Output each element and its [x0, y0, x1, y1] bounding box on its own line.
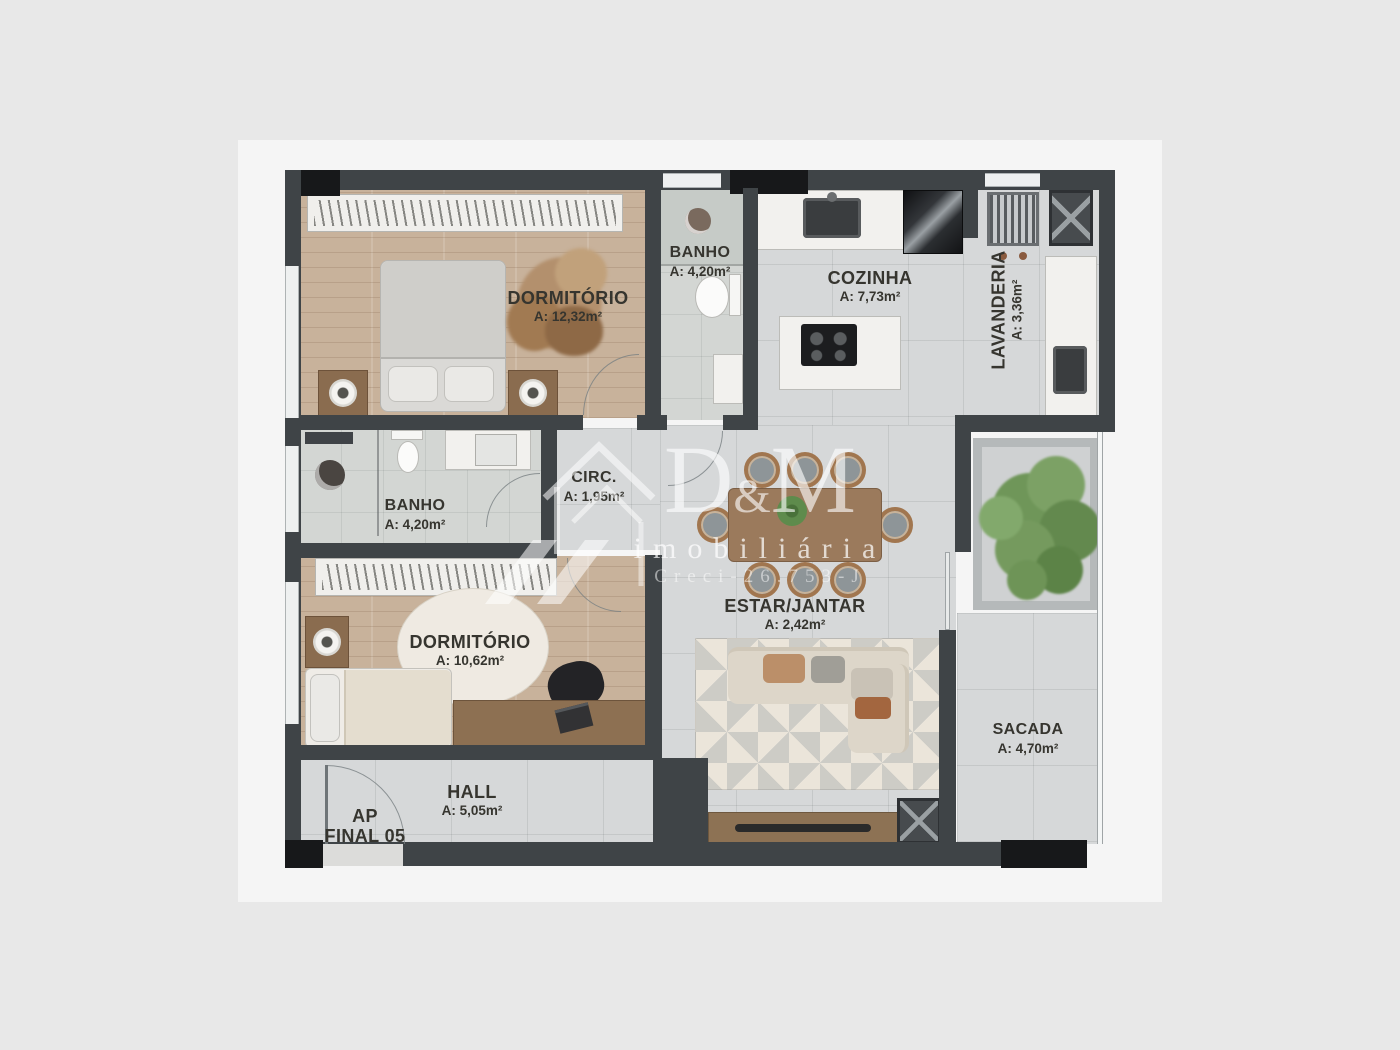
wall [939, 630, 956, 842]
room-label-circulacao: CIRC. A: 1,95m² [564, 468, 625, 505]
tv-icon [735, 824, 871, 832]
tree-foliage [1007, 560, 1047, 600]
room-name: DORMITÓRIO [508, 288, 629, 308]
wall [285, 745, 662, 760]
cushion-icon [811, 656, 845, 683]
cushion-icon [855, 697, 891, 719]
wall [285, 840, 323, 868]
toilet-icon [397, 441, 419, 473]
laundry-sink-icon [1053, 346, 1087, 394]
sink-icon [713, 354, 743, 404]
dining-chair-icon [744, 452, 780, 488]
room-label-cozinha: COZINHA A: 7,73m² [828, 268, 913, 305]
wall [963, 188, 978, 238]
room-area: A: 7,73m² [828, 288, 913, 305]
room-area: A: 1,95m² [564, 488, 625, 505]
room-label-estar-jantar: ESTAR/JANTAR A: 2,42m² [724, 596, 865, 633]
dining-table-icon [728, 488, 882, 562]
pillow-icon [310, 674, 340, 742]
sliding-door [945, 552, 950, 630]
wardrobe-icon [307, 194, 623, 232]
room-name: BANHO [385, 496, 446, 516]
room-name: SACADA [993, 720, 1064, 740]
room-area: A: 2,42m² [724, 616, 865, 633]
pillow-icon [388, 366, 438, 402]
room-name: ESTAR/JANTAR [724, 596, 865, 616]
window [285, 582, 299, 724]
hanger-strokes [314, 200, 616, 226]
washer-icon [987, 192, 1039, 246]
wall [541, 430, 557, 558]
room-label-banho-1: BANHO A: 4,20m² [670, 243, 731, 280]
pillow-icon [444, 366, 494, 402]
cushion-icon [763, 654, 805, 683]
room-area: A: 4,20m² [670, 263, 731, 280]
dining-chair-icon [877, 507, 913, 543]
shaft-x-icon [1049, 190, 1093, 246]
room-label-hall: HALL A: 5,05m² [442, 782, 503, 819]
window [985, 173, 1040, 187]
wall [637, 415, 667, 430]
shower-head-icon [315, 460, 345, 490]
table-plant-icon [777, 496, 807, 526]
room-label-dormitorio-1: DORMITÓRIO A: 12,32m² [508, 288, 629, 325]
hanger-strokes [322, 564, 550, 590]
blanket [381, 261, 505, 359]
shower-glass-partition [377, 430, 379, 536]
floor-plan: DORMITÓRIO A: 12,32m² BANHO A: 4,20m² CO… [285, 170, 1115, 868]
sink-icon [475, 434, 517, 466]
fridge-icon [903, 190, 963, 254]
wardrobe-icon [315, 558, 557, 596]
room-label-lavanderia: LAVANDERIA A: 3,36m² [989, 250, 1026, 369]
tree-foliage [979, 496, 1023, 540]
desk-icon [453, 700, 651, 746]
room-area: A: 12,32m² [508, 308, 629, 325]
unit-label: AP FINAL 05 [325, 806, 406, 846]
lamp-icon [313, 628, 341, 656]
room-name: DORMITÓRIO [410, 632, 531, 652]
faucet-icon [827, 192, 837, 202]
wall [730, 170, 808, 194]
wall [1001, 840, 1087, 868]
room-name: CIRC. [564, 468, 625, 488]
wall [285, 543, 557, 558]
lamp-icon [329, 379, 357, 407]
toilet-icon [729, 274, 741, 316]
unit-line2: FINAL 05 [325, 826, 406, 846]
room-area: A: 4,20m² [385, 516, 446, 533]
window [285, 266, 299, 418]
duvet [344, 670, 451, 746]
room-area: A: 4,70m² [993, 740, 1064, 757]
entry-threshold [315, 844, 403, 866]
wall [743, 188, 758, 430]
room-name: LAVANDERIA [989, 250, 1009, 369]
room-name: COZINHA [828, 268, 913, 288]
window [285, 446, 299, 532]
dining-chair-icon [830, 452, 866, 488]
cooktop-icon [801, 324, 857, 366]
kitchen-sink-icon [803, 198, 861, 238]
dining-chair-icon [787, 562, 823, 598]
unit-line1: AP [325, 806, 406, 826]
laundry-counter [1045, 256, 1097, 422]
column-x-icon [897, 798, 941, 844]
cushion-icon [851, 668, 893, 700]
dining-chair-icon [830, 562, 866, 598]
single-bed-icon [305, 668, 452, 748]
dining-chair-icon [787, 452, 823, 488]
room-label-dormitorio-2: DORMITÓRIO A: 10,62m² [410, 632, 531, 669]
glass-railing [1097, 420, 1103, 844]
wall [723, 415, 758, 430]
wall [1099, 170, 1115, 432]
wall [653, 758, 708, 842]
tree-icon [977, 448, 1097, 600]
wall [285, 415, 583, 430]
room-area: A: 5,05m² [442, 802, 503, 819]
wall [955, 432, 971, 552]
shower-drain-icon [685, 208, 711, 234]
bath2-shelf [305, 432, 353, 444]
room-label-sacada: SACADA A: 4,70m² [993, 720, 1064, 757]
room-label-banho-2: BANHO A: 4,20m² [385, 496, 446, 533]
room-name: HALL [442, 782, 503, 802]
wall [955, 415, 1099, 432]
room-area: A: 10,62m² [410, 652, 531, 669]
toilet-icon [695, 276, 729, 318]
dining-chair-icon [744, 562, 780, 598]
room-area: A: 3,36m² [1009, 250, 1026, 369]
lamp-icon [519, 379, 547, 407]
window [663, 173, 721, 188]
room-name: BANHO [670, 243, 731, 263]
toilet-icon [391, 430, 423, 440]
wall [645, 555, 662, 760]
wall [645, 188, 661, 430]
floorplan-page: { "page": {"background": "#e8e8e8", "pho… [0, 0, 1400, 1050]
